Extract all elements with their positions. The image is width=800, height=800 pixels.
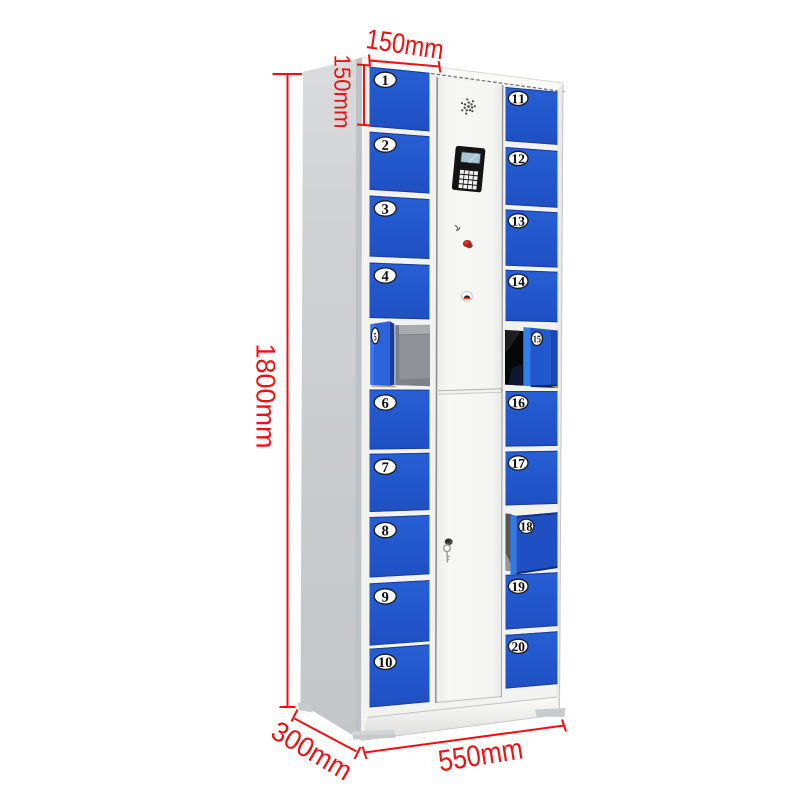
svg-text:1800mm: 1800mm	[251, 343, 281, 448]
svg-text:150mm: 150mm	[329, 55, 355, 129]
